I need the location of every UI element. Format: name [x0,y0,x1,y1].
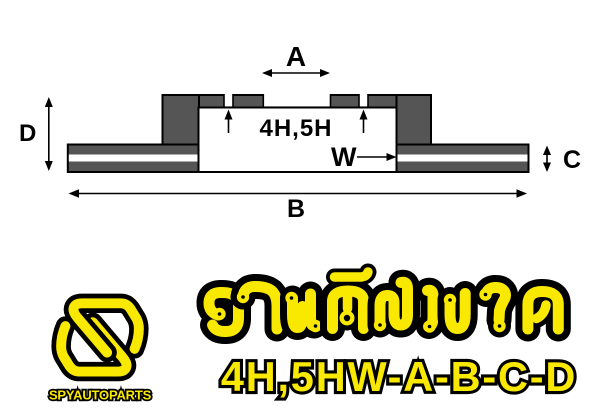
svg-text:A: A [286,41,306,72]
svg-text:SPYAUTOPARTS: SPYAUTOPARTS [49,388,152,403]
svg-text:B: B [287,195,305,223]
svg-text:C: C [563,146,581,174]
svg-text:D: D [19,120,36,147]
svg-text:4H,5HW-A-B-C-D: 4H,5HW-A-B-C-D [221,353,577,400]
svg-text:4H,5H: 4H,5H [259,115,332,142]
svg-text:W: W [331,142,357,172]
